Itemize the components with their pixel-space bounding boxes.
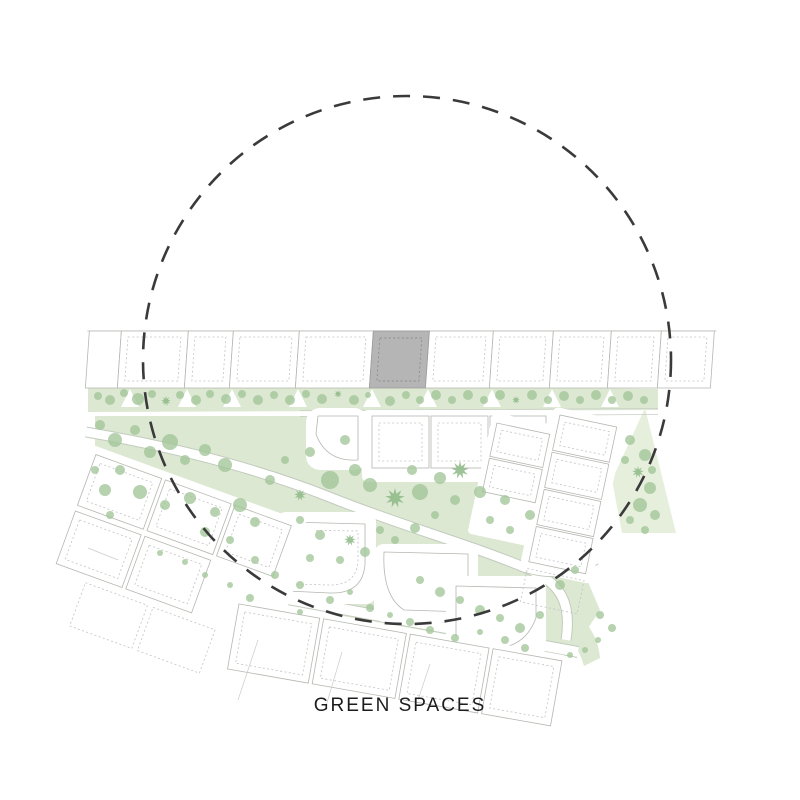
- site-plan-page: GREEN SPACES: [0, 0, 800, 800]
- tree-icon: [435, 587, 445, 597]
- tree-icon: [210, 507, 220, 517]
- highlighted-building: [369, 331, 429, 388]
- tree-icon: [402, 391, 410, 399]
- tree-icon: [625, 435, 635, 445]
- tree-icon: [271, 571, 279, 579]
- tree-icon: [250, 517, 260, 527]
- tree-icon: [251, 556, 259, 564]
- tree-icon: [182, 559, 188, 565]
- tree-icon: [391, 536, 399, 544]
- tree-icon: [366, 604, 374, 612]
- tree-icon: [99, 484, 111, 496]
- tree-icon: [644, 482, 656, 494]
- tree-icon: [297, 609, 303, 615]
- tree-icon: [315, 530, 325, 540]
- tree-icon: [434, 472, 446, 484]
- tree-icon: [227, 582, 233, 588]
- tree-icon: [246, 594, 254, 602]
- tree-icon: [270, 391, 278, 399]
- tree-icon: [525, 510, 535, 520]
- tree-icon: [306, 554, 314, 562]
- tree-icon: [426, 626, 434, 634]
- tree-icon: [206, 390, 214, 398]
- tree-icon: [296, 516, 304, 524]
- tree-icon: [450, 495, 460, 505]
- tree-icon: [412, 484, 428, 500]
- tree-icon: [347, 589, 353, 595]
- tree-icon: [253, 395, 263, 405]
- tree-icon: [496, 614, 504, 622]
- tree-icon: [571, 566, 579, 574]
- tree-icon: [285, 395, 295, 405]
- tree-icon: [184, 492, 196, 504]
- tree-icon: [410, 523, 420, 533]
- tree-icon: [555, 580, 565, 590]
- tree-icon: [495, 390, 505, 400]
- tree-icon: [317, 394, 327, 404]
- tree-icon: [191, 395, 201, 405]
- tree-icon: [176, 391, 184, 399]
- tree-icon: [486, 516, 494, 524]
- tree-icon: [157, 550, 163, 556]
- tree-icon: [576, 396, 584, 404]
- tree-icon: [385, 396, 395, 406]
- tree-icon: [456, 596, 464, 604]
- tree-icon: [536, 611, 544, 619]
- tree-icon: [281, 456, 289, 464]
- tree-icon: [133, 485, 147, 499]
- tree-icon: [474, 486, 486, 498]
- tree-icon: [639, 449, 651, 461]
- tree-icon: [648, 466, 656, 474]
- tree-icon: [500, 495, 510, 505]
- tree-icon: [202, 572, 208, 578]
- tree-icon: [144, 446, 156, 458]
- site-plan-svg: GREEN SPACES: [0, 0, 800, 800]
- tree-icon: [387, 612, 393, 618]
- tree-icon: [162, 434, 178, 450]
- tree-icon: [596, 611, 604, 619]
- tree-icon: [349, 395, 359, 405]
- tree-icon: [544, 396, 552, 404]
- tree-icon: [559, 391, 569, 401]
- tree-icon: [451, 634, 459, 642]
- tree-icon: [608, 396, 616, 404]
- tree-icon: [160, 500, 170, 510]
- tree-icon: [608, 624, 616, 632]
- diagram-title: GREEN SPACES: [314, 695, 487, 716]
- tree-icon: [302, 390, 310, 398]
- tree-icon: [591, 390, 601, 400]
- tree-icon: [296, 581, 304, 589]
- tree-icon: [265, 475, 275, 485]
- tree-icon: [477, 629, 483, 635]
- tree-icon: [233, 498, 247, 512]
- tree-icon: [132, 393, 144, 405]
- tree-icon: [501, 636, 509, 644]
- tree-icon: [582, 647, 588, 653]
- tree-icon: [120, 389, 128, 397]
- tree-icon: [521, 644, 529, 652]
- tree-icon: [363, 478, 377, 492]
- tree-icon: [105, 395, 115, 405]
- tree-icon: [567, 652, 573, 658]
- tree-icon: [515, 623, 525, 633]
- tree-icon: [650, 510, 660, 520]
- tree-icon: [305, 447, 315, 457]
- tree-icon: [340, 435, 350, 445]
- tree-icon: [480, 396, 488, 404]
- tree-icon: [221, 394, 231, 404]
- tree-icon: [626, 516, 634, 524]
- tree-icon: [595, 637, 601, 643]
- tree-icon: [416, 396, 424, 404]
- tree-icon: [406, 618, 414, 626]
- tree-icon: [238, 390, 246, 398]
- tree-icon: [321, 471, 339, 489]
- tree-icon: [407, 465, 417, 475]
- tree-icon: [218, 458, 232, 472]
- tree-icon: [506, 526, 514, 534]
- tree-icon: [431, 390, 441, 400]
- tree-icon: [463, 390, 473, 400]
- tree-icon: [527, 390, 537, 400]
- tree-icon: [226, 536, 234, 544]
- plot-row-top: [83, 331, 716, 388]
- tree-icon: [115, 465, 125, 475]
- tree-icon: [621, 456, 629, 464]
- tree-icon: [448, 396, 456, 404]
- tree-icon: [640, 396, 648, 404]
- tree-icon: [641, 526, 649, 534]
- tree-icon: [199, 444, 211, 456]
- tree-icon: [95, 420, 105, 430]
- tree-icon: [326, 596, 334, 604]
- tree-icon: [180, 455, 190, 465]
- tree-icon: [94, 392, 102, 400]
- tree-icon: [416, 576, 424, 584]
- tree-icon: [336, 556, 344, 564]
- tree-icon: [376, 526, 384, 534]
- tree-icon: [633, 498, 647, 512]
- tree-icon: [349, 464, 361, 476]
- tree-icon: [431, 511, 439, 519]
- tree-icon: [148, 390, 156, 398]
- tree-icon: [360, 547, 370, 557]
- tree-icon: [106, 511, 114, 519]
- tree-icon: [623, 391, 633, 401]
- tree-icon: [130, 425, 140, 435]
- tree-icon: [91, 466, 99, 474]
- tree-icon: [365, 392, 371, 398]
- tree-icon: [108, 433, 122, 447]
